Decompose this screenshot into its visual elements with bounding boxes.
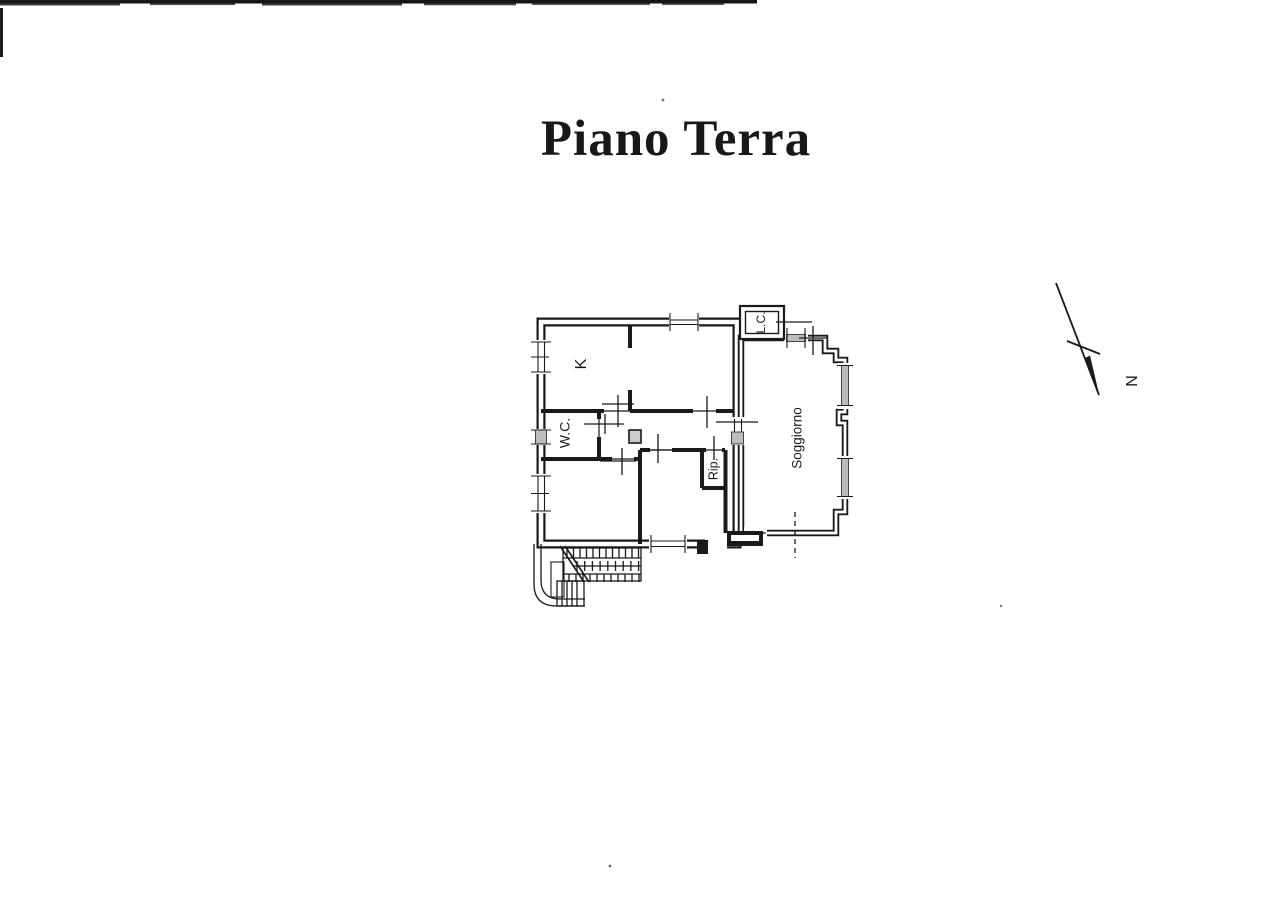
windows (531, 313, 853, 553)
compass-north-label: N (1124, 375, 1141, 387)
room-label-living-room: Soggiorno (790, 407, 805, 469)
room-label-wc: W.C. (557, 418, 573, 448)
north-arrow-head (1085, 356, 1100, 397)
room-label-storage: Rip. (706, 458, 720, 480)
north-arrow-crossbar (1067, 341, 1100, 354)
stairs (534, 544, 641, 606)
room-label-light-court: L.C. (754, 311, 768, 333)
scan-artifacts (0, 0, 1002, 867)
scanned-floor-plan-page: Piano Terra (0, 0, 1280, 905)
room-label-kitchen: K (573, 358, 590, 369)
column-pillar (629, 430, 641, 443)
entry-step (697, 540, 708, 554)
floor-plan-drawing: N K W.C. Rip. Soggiorno L.C. (0, 0, 1280, 905)
compass: N (1056, 283, 1141, 396)
north-arrow-shaft (1056, 283, 1099, 395)
